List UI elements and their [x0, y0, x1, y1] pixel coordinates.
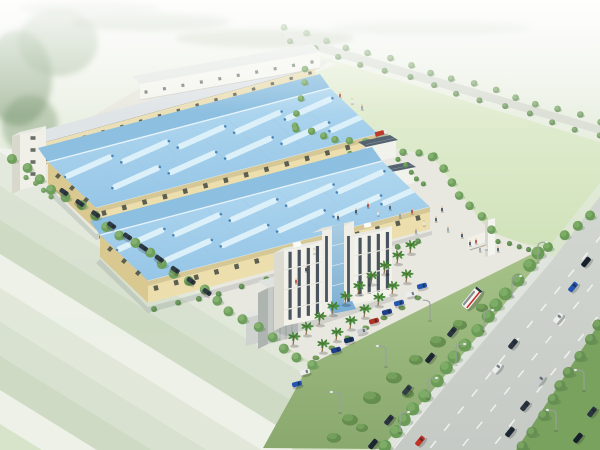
rendering-canvas	[0, 0, 600, 450]
distance-haze	[0, 0, 600, 115]
gate-pillar	[488, 218, 495, 256]
factory-aerial-rendering	[0, 0, 600, 450]
